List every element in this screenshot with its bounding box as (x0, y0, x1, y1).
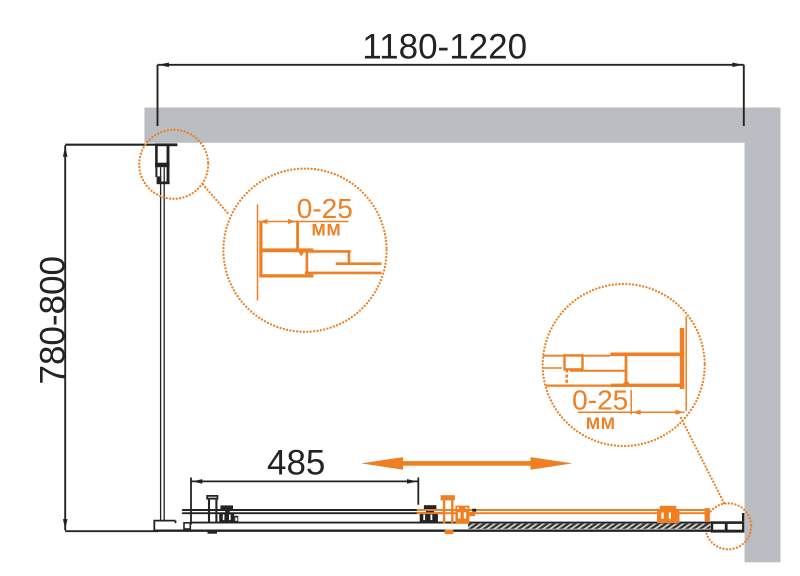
svg-text:0-25: 0-25 (297, 193, 353, 224)
svg-text:485: 485 (267, 444, 325, 483)
svg-text:780-800: 780-800 (34, 256, 73, 384)
svg-text:MM: MM (312, 221, 342, 240)
svg-text:0-25: 0-25 (572, 384, 628, 415)
svg-text:MM: MM (586, 414, 616, 433)
svg-text:1180-1220: 1180-1220 (362, 28, 527, 67)
